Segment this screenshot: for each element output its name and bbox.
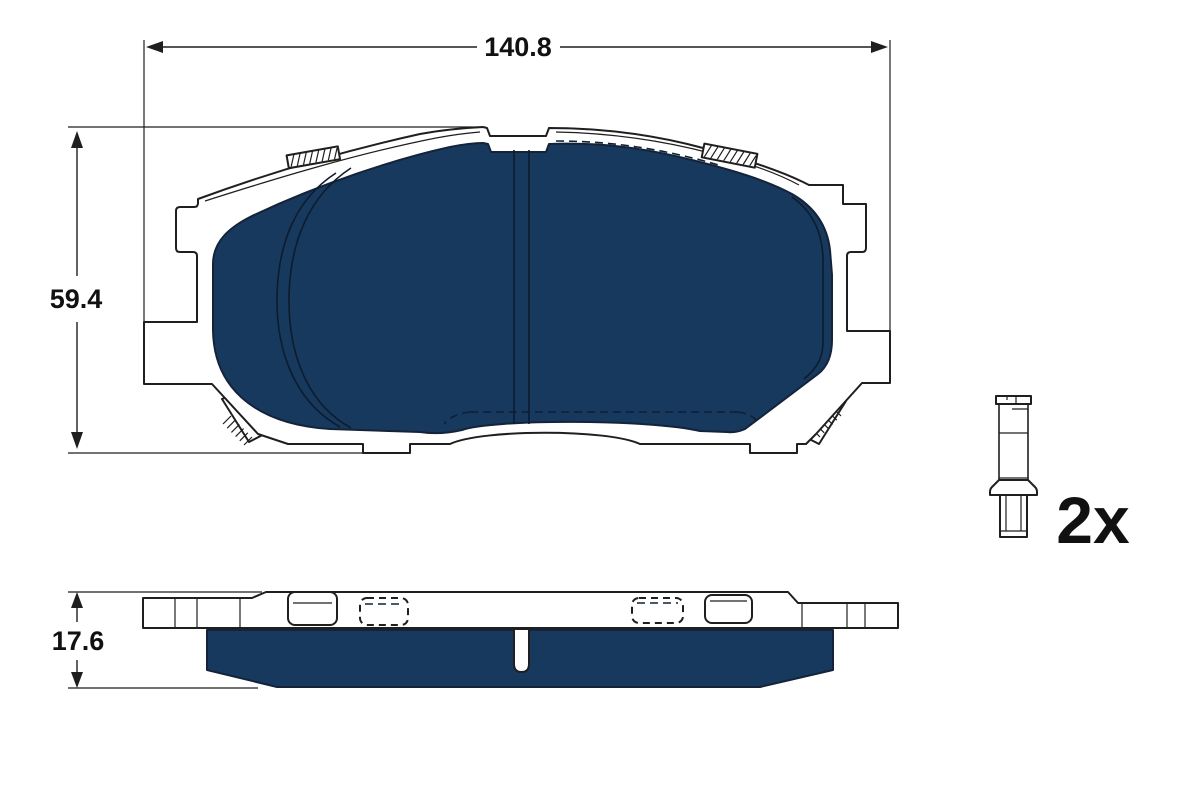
pin-top-cap — [996, 396, 1031, 404]
height-dim-label: 59.4 — [50, 284, 103, 314]
brake-pad-technical-drawing: 140.8 59.4 — [0, 0, 1200, 800]
arrowhead-down-side — [71, 672, 83, 688]
side-view: 17.6 — [52, 592, 898, 688]
pin-body — [999, 404, 1028, 480]
arrowhead-up — [71, 131, 83, 148]
drawing-canvas: 140.8 59.4 — [0, 0, 1200, 800]
front-view: 140.8 59.4 — [50, 32, 890, 453]
backing-plate-side — [143, 592, 898, 628]
groove-slot-side — [514, 629, 529, 672]
pin-sleeve — [1000, 495, 1027, 537]
arrowhead-left — [146, 41, 163, 53]
arrowhead-up-side — [71, 592, 83, 608]
thickness-dim-label: 17.6 — [52, 626, 105, 656]
arrowhead-down — [71, 432, 83, 449]
accessory-pin: 2x — [990, 396, 1130, 557]
accessory-quantity-label: 2x — [1056, 483, 1130, 557]
clip-solid-right — [705, 595, 752, 623]
width-dim-label: 140.8 — [484, 32, 552, 62]
arrowhead-right — [871, 41, 888, 53]
pin-flange — [990, 480, 1037, 495]
clip-solid-left — [288, 592, 337, 625]
